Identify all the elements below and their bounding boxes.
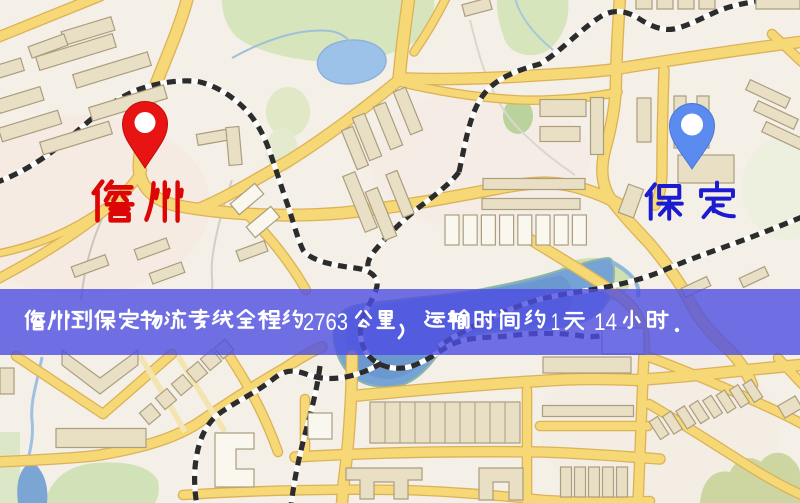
svg-text:2763: 2763 <box>303 309 348 336</box>
svg-text:14: 14 <box>594 309 617 336</box>
svg-text:1: 1 <box>551 309 560 336</box>
